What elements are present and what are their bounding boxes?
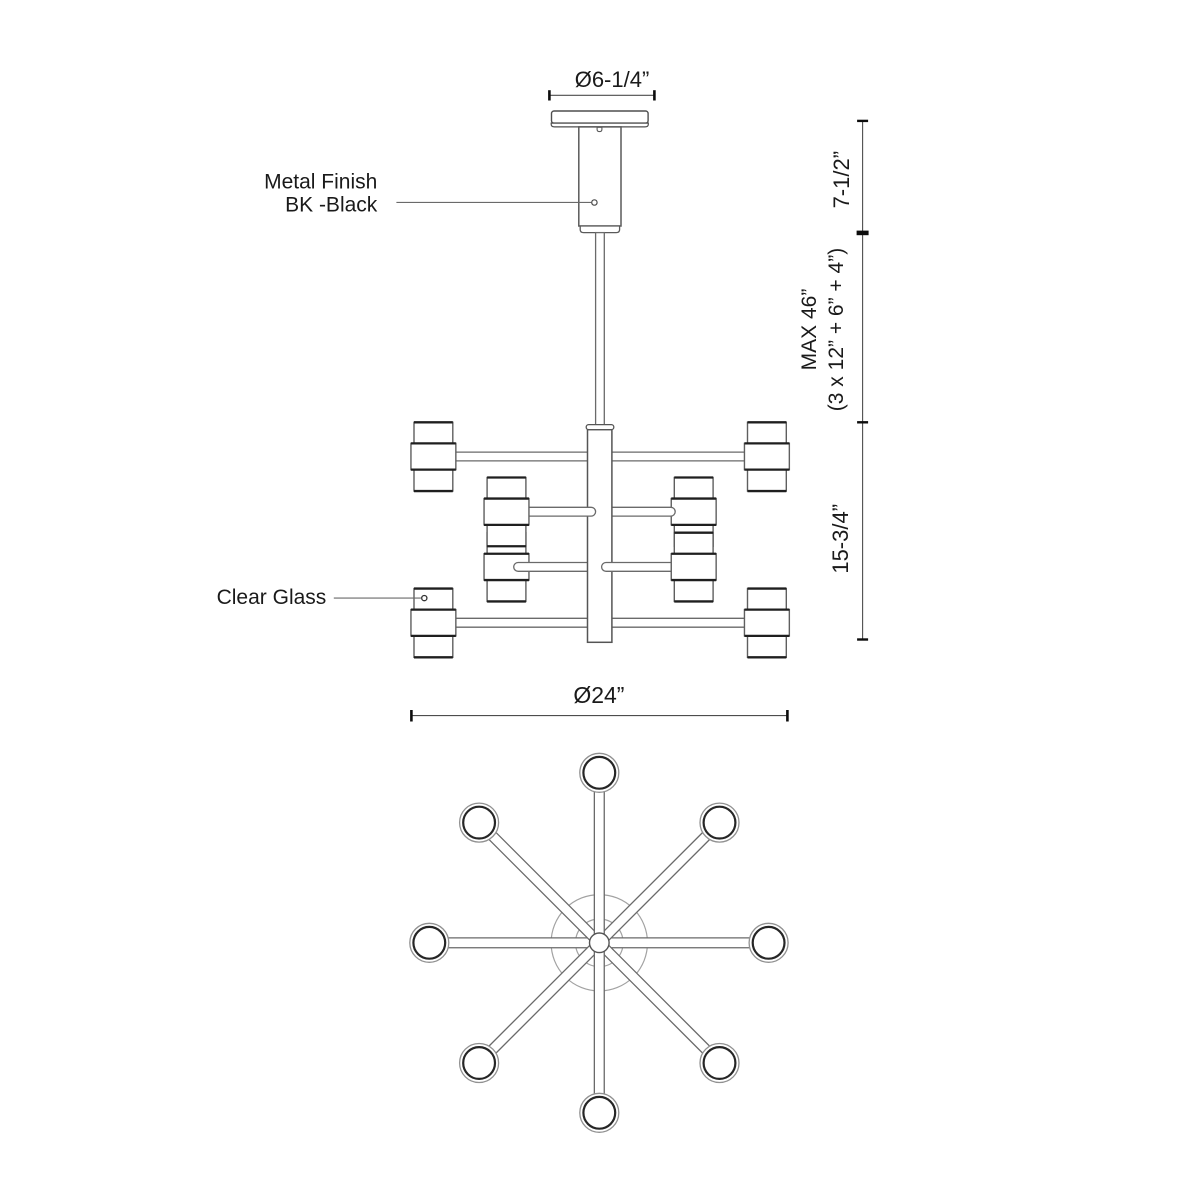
svg-text:Ø6-1/4”: Ø6-1/4” (575, 67, 650, 92)
svg-text:15-3/4”: 15-3/4” (828, 504, 853, 574)
svg-text:Clear Glass: Clear Glass (217, 586, 327, 609)
svg-text:Ø24”: Ø24” (573, 682, 624, 708)
svg-text:Metal Finish: Metal Finish (264, 171, 377, 194)
svg-text:7-1/2”: 7-1/2” (829, 151, 854, 208)
svg-text:(3 x 12” + 6” + 4”): (3 x 12” + 6” + 4”) (825, 248, 848, 411)
svg-text:BK -Black: BK -Black (285, 193, 378, 216)
svg-text:MAX 46”: MAX 46” (798, 289, 821, 371)
